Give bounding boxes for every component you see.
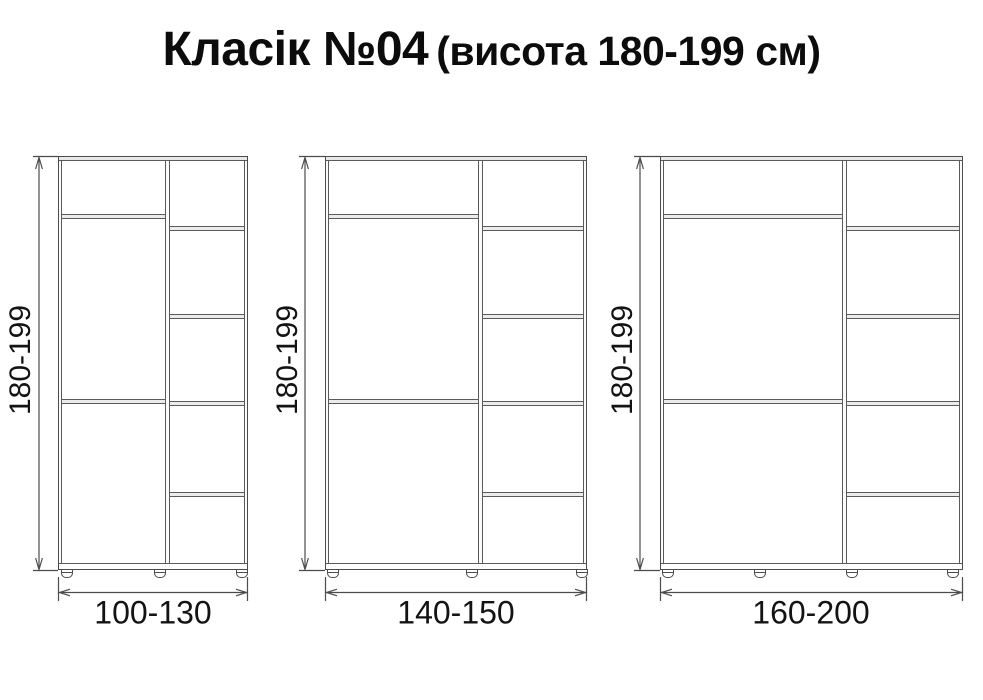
right-shelf-3: [170, 401, 244, 406]
cabinet-foot: [576, 569, 588, 578]
wardrobe-large-cabinet: [660, 156, 963, 570]
cabinet-foot: [236, 569, 248, 578]
cabinet-vertical-divider: [165, 161, 170, 563]
left-top-shelf: [62, 214, 165, 219]
cabinet-bottom-panel: [59, 563, 247, 569]
width-dimension-label: 160-200: [752, 595, 869, 632]
cabinet-right-panel: [583, 161, 586, 563]
height-dimension-label: 180-199: [271, 305, 305, 415]
cabinet-foot: [846, 569, 858, 578]
wardrobe-small-cabinet: [58, 156, 248, 570]
cabinet-foot: [466, 569, 478, 578]
cabinet-foot: [61, 569, 73, 578]
cabinet-foot: [154, 569, 166, 578]
page-title: Класік №04(висота 180-199 см): [0, 24, 983, 80]
cabinet-top-panel: [661, 157, 962, 161]
width-dimension-label: 100-130: [94, 595, 211, 632]
width-dimension-label: 140-150: [397, 595, 514, 632]
cabinet-foot: [662, 569, 674, 578]
cabinet-left-panel: [59, 161, 62, 563]
left-bottom-shelf: [664, 399, 842, 404]
right-shelf-2: [170, 314, 244, 319]
right-shelf-3: [847, 401, 959, 406]
right-shelf-4: [483, 492, 583, 497]
left-top-shelf: [329, 214, 478, 219]
left-top-shelf: [664, 214, 842, 219]
cabinet-top-panel: [326, 157, 586, 161]
diagram-page: Класік №04(висота 180-199 см): [0, 0, 983, 700]
right-shelf-4: [170, 492, 244, 497]
left-bottom-shelf: [62, 399, 165, 404]
height-dimension-label: 180-199: [606, 305, 640, 415]
right-shelf-1: [170, 226, 244, 231]
cabinet-bottom-panel: [326, 563, 586, 569]
wardrobe-medium-cabinet: [325, 156, 587, 570]
right-shelf-2: [847, 314, 959, 319]
cabinet-left-panel: [661, 161, 664, 563]
title-sub: (висота 180-199 см): [436, 28, 820, 74]
cabinet-bottom-panel: [661, 563, 962, 569]
cabinet-right-panel: [959, 161, 962, 563]
right-shelf-1: [483, 226, 583, 231]
left-bottom-shelf: [329, 399, 478, 404]
right-shelf-2: [483, 314, 583, 319]
cabinet-right-panel: [244, 161, 247, 563]
right-shelf-4: [847, 492, 959, 497]
cabinet-foot: [754, 569, 766, 578]
title-main: Класік №04: [162, 23, 428, 76]
cabinet-vertical-divider: [478, 161, 483, 563]
cabinet-foot: [327, 569, 339, 578]
cabinet-top-panel: [59, 157, 247, 161]
cabinet-vertical-divider: [842, 161, 847, 563]
cabinet-foot: [947, 569, 959, 578]
height-dimension-label: 180-199: [4, 305, 38, 415]
right-shelf-1: [847, 226, 959, 231]
right-shelf-3: [483, 401, 583, 406]
cabinet-left-panel: [326, 161, 329, 563]
